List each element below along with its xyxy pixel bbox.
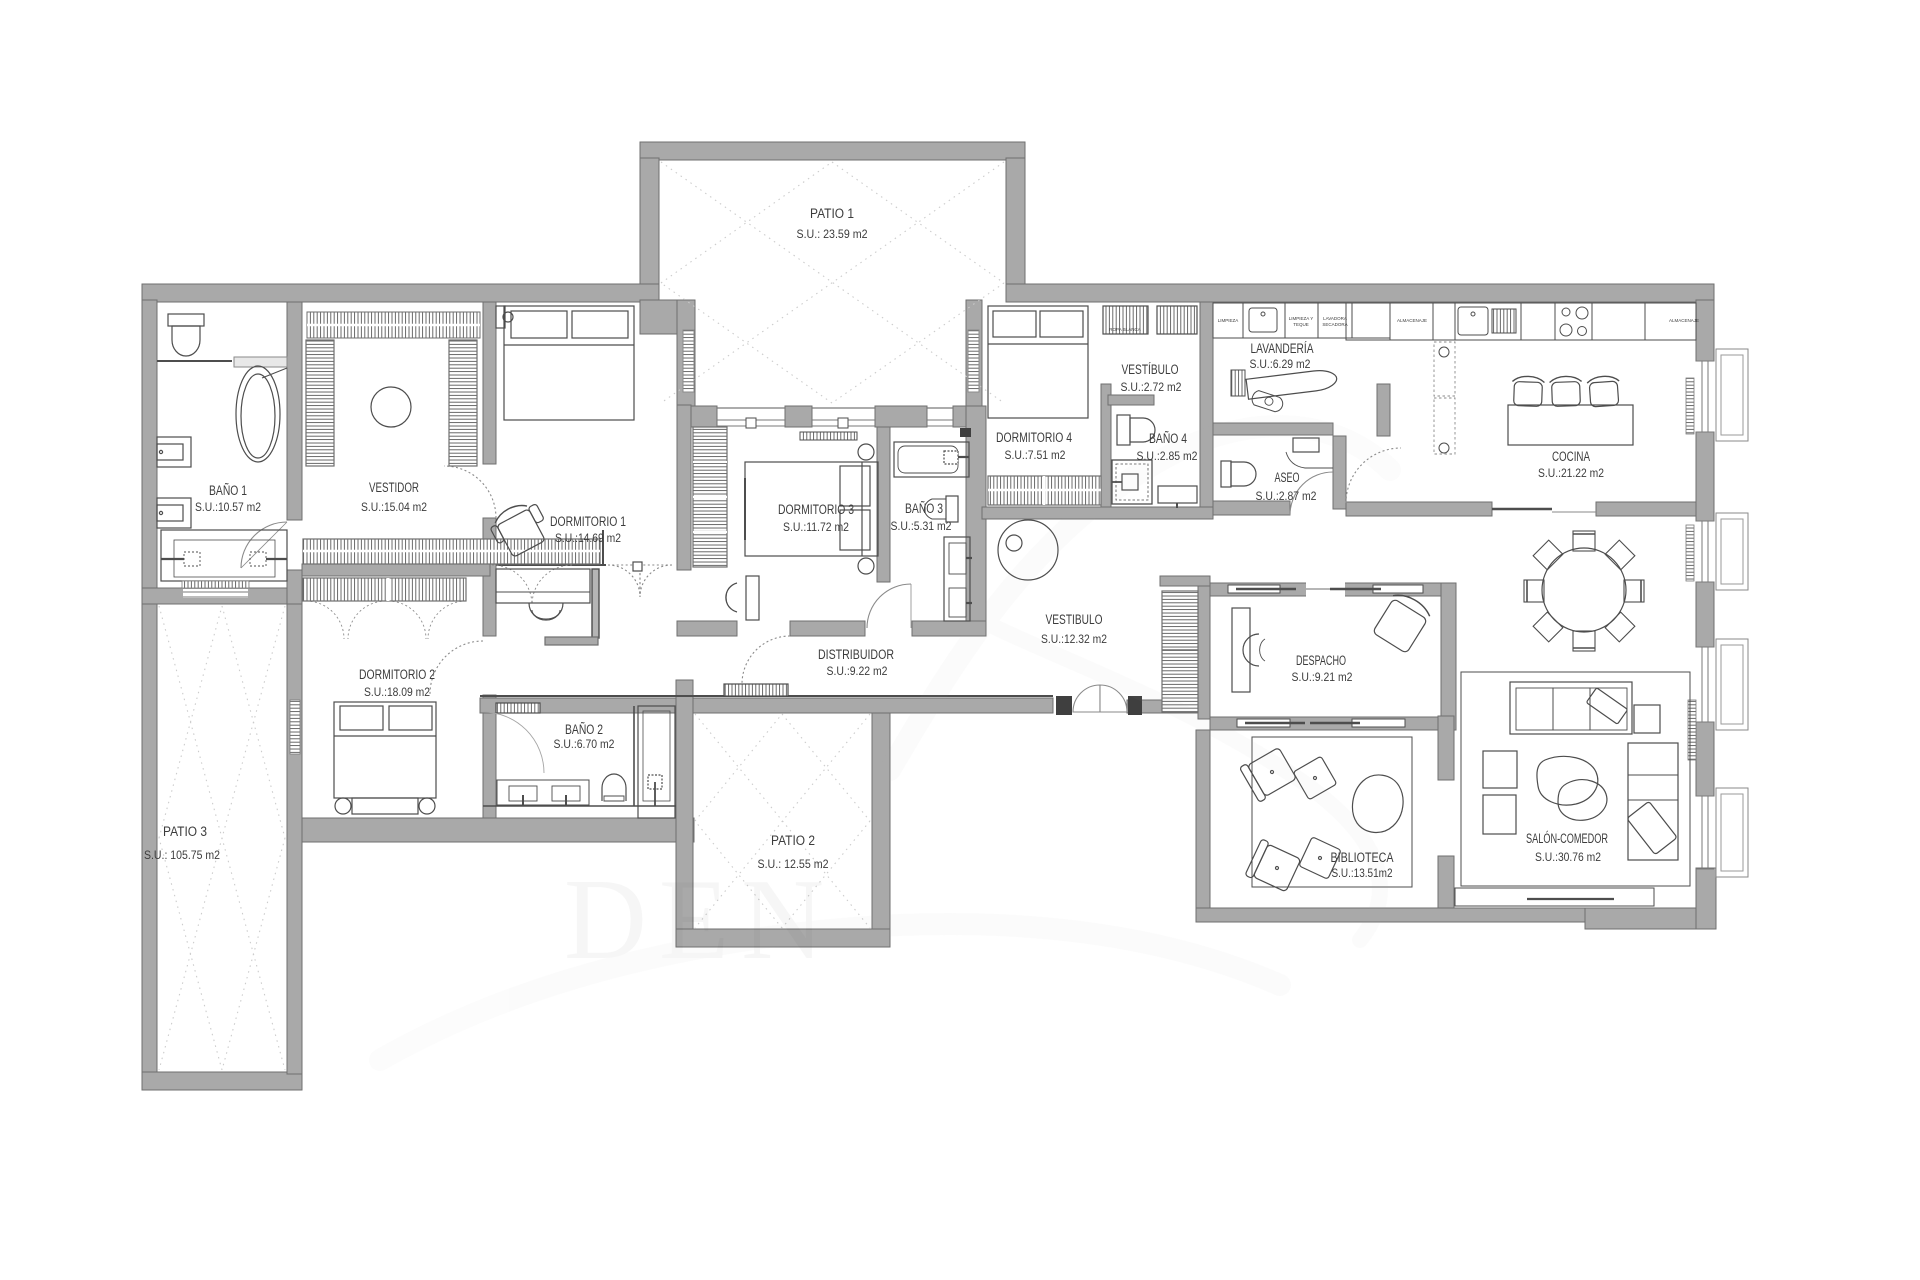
svg-text:LIMPIEZA Y: LIMPIEZA Y (1289, 316, 1313, 321)
svg-text:S.U.:12.32 m2: S.U.:12.32 m2 (1041, 632, 1107, 646)
svg-text:DISTRIBUIDOR: DISTRIBUIDOR (818, 647, 894, 662)
svg-text:S.U.:2.87 m2: S.U.:2.87 m2 (1256, 489, 1317, 503)
svg-text:S.U.:14.69 m2: S.U.:14.69 m2 (555, 531, 621, 545)
svg-text:VESTIBULO: VESTIBULO (1046, 612, 1103, 627)
svg-text:DORMITORIO 1: DORMITORIO 1 (550, 514, 626, 529)
svg-text:S.U.:15.04 m2: S.U.:15.04 m2 (361, 500, 427, 514)
svg-text:COCINA: COCINA (1552, 449, 1590, 464)
svg-text:SECADORA: SECADORA (1322, 322, 1347, 327)
svg-text:DORMITORIO 4: DORMITORIO 4 (996, 430, 1072, 445)
svg-text:S.U.:6.70 m2: S.U.:6.70 m2 (554, 737, 615, 751)
svg-text:BAÑO 2: BAÑO 2 (565, 722, 603, 737)
svg-text:LIMPIEZA: LIMPIEZA (1218, 318, 1239, 323)
svg-text:S.U.:21.22 m2: S.U.:21.22 m2 (1538, 466, 1604, 480)
svg-text:PATIO 1: PATIO 1 (810, 206, 854, 221)
svg-text:S.U.:18.09 m2: S.U.:18.09 m2 (364, 685, 430, 699)
svg-text:S.U.:11.72 m2: S.U.:11.72 m2 (783, 520, 849, 534)
svg-text:S.U.:7.51 m2: S.U.:7.51 m2 (1005, 448, 1066, 462)
svg-text:ALMACENAJE: ALMACENAJE (1669, 318, 1699, 323)
svg-text:S.U.: 105.75 m2: S.U.: 105.75 m2 (144, 848, 220, 862)
svg-text:BIBLIOTECA: BIBLIOTECA (1331, 850, 1394, 865)
svg-text:S.U.:9.21 m2: S.U.:9.21 m2 (1292, 670, 1353, 684)
svg-text:PATIO 2: PATIO 2 (771, 833, 815, 848)
svg-text:SALÓN-COMEDOR: SALÓN-COMEDOR (1526, 831, 1608, 846)
svg-text:S.U.: 12.55 m2: S.U.: 12.55 m2 (758, 857, 829, 871)
svg-text:LAVANDERÍA: LAVANDERÍA (1251, 341, 1314, 356)
svg-text:S.U.:9.22 m2: S.U.:9.22 m2 (827, 664, 888, 678)
svg-text:S.U.:10.57 m2: S.U.:10.57 m2 (195, 500, 261, 514)
svg-text:VESTÍBULO: VESTÍBULO (1122, 362, 1179, 377)
svg-text:S.U.:13.51m2: S.U.:13.51m2 (1332, 866, 1393, 880)
svg-text:DORMITORIO 3: DORMITORIO 3 (778, 502, 854, 517)
svg-text:S.U.:6.29 m2: S.U.:6.29 m2 (1250, 357, 1311, 371)
svg-text:DEN: DEN (564, 856, 836, 983)
svg-text:ASEO: ASEO (1275, 470, 1300, 485)
svg-text:BAÑO 4: BAÑO 4 (1149, 431, 1187, 446)
svg-text:DESPACHO: DESPACHO (1296, 653, 1346, 668)
svg-text:TEQUE: TEQUE (1293, 322, 1309, 327)
svg-text:BAÑO 3: BAÑO 3 (905, 501, 943, 516)
svg-text:S.U.:30.76 m2: S.U.:30.76 m2 (1535, 850, 1601, 864)
svg-text:BAÑO 1: BAÑO 1 (209, 483, 247, 498)
svg-text:S.U.:2.72 m2: S.U.:2.72 m2 (1121, 380, 1182, 394)
svg-text:S.U.: 23.59 m2: S.U.: 23.59 m2 (797, 227, 868, 241)
svg-text:PATIO 3: PATIO 3 (163, 824, 207, 839)
svg-text:ALMACENAJE: ALMACENAJE (1397, 318, 1427, 323)
svg-text:DORMITORIO 2: DORMITORIO 2 (359, 667, 435, 682)
svg-text:S.U.:2.85 m2: S.U.:2.85 m2 (1137, 449, 1198, 463)
svg-text:VESTIDOR: VESTIDOR (369, 480, 419, 495)
svg-text:ROPA BLANCA: ROPA BLANCA (1109, 327, 1140, 332)
svg-text:LAVADORA: LAVADORA (1323, 316, 1347, 321)
svg-text:S.U.:5.31 m2: S.U.:5.31 m2 (891, 519, 952, 533)
